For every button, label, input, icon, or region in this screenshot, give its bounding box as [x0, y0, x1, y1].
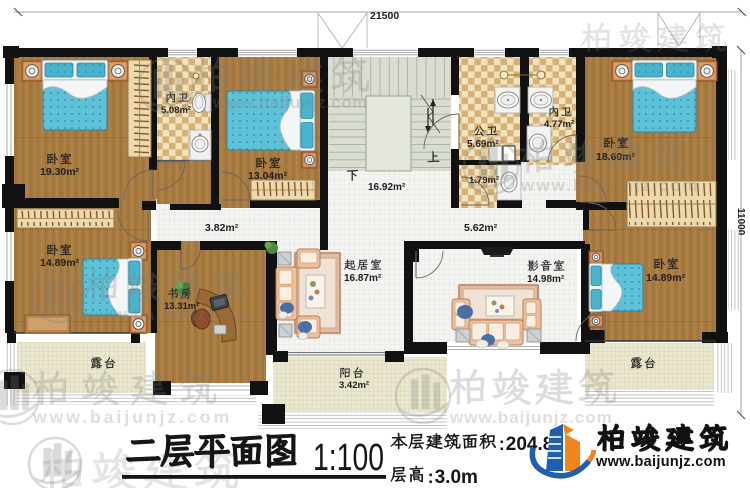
svg-text:3.0m: 3.0m — [435, 467, 478, 488]
svg-text:www.baijunjz.com: www.baijunjz.com — [212, 93, 368, 112]
svg-text::: : — [428, 467, 434, 487]
svg-text:21500: 21500 — [370, 10, 399, 22]
svg-text:204.8: 204.8 — [506, 434, 554, 455]
svg-text:16.87m²: 16.87m² — [344, 273, 382, 284]
svg-text:3.82m²: 3.82m² — [205, 222, 239, 234]
svg-text:5.62m²: 5.62m² — [464, 222, 498, 234]
svg-text:www.baijunjz.com: www.baijunjz.com — [520, 176, 700, 195]
svg-text:16.92m²: 16.92m² — [368, 182, 406, 193]
svg-text:1:100: 1:100 — [313, 437, 384, 479]
svg-text::: : — [499, 434, 505, 454]
svg-text:19.30m²: 19.30m² — [40, 166, 80, 178]
svg-text:13.04m²: 13.04m² — [248, 170, 288, 182]
svg-text:www.baijunjz.com: www.baijunjz.com — [595, 454, 726, 470]
svg-text:www.baijunjz.com: www.baijunjz.com — [32, 407, 232, 427]
svg-text:14.98m²: 14.98m² — [527, 274, 565, 285]
svg-text:14.89m²: 14.89m² — [646, 272, 686, 284]
svg-text:4.77m²: 4.77m² — [544, 119, 574, 130]
svg-text:www.baijunjz.com: www.baijunjz.com — [449, 408, 613, 427]
svg-text:14.89m²: 14.89m² — [40, 257, 80, 269]
svg-text:3.42m²: 3.42m² — [339, 380, 369, 391]
svg-text:www.baijunjz.com: www.baijunjz.com — [84, 306, 251, 324]
